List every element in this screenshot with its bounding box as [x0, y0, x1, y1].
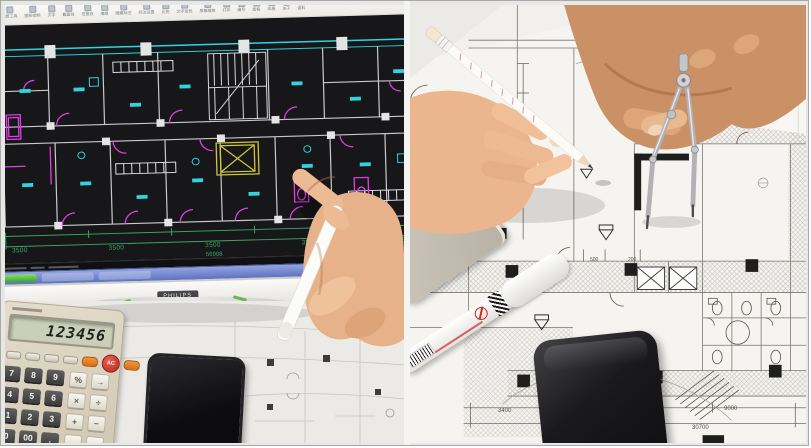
panel-divider — [404, 1, 410, 446]
left-photo-cad-monitor: 图层工具图形绘制文字截面线任意线编组隐藏标注标注设置比例文字查找屏幕缩放打印编号… — [5, 5, 404, 443]
pointing-hand — [5, 5, 404, 443]
drafting-hands — [410, 5, 806, 443]
right-photo-blueprint-drafting: 500 200 3400 9000 30700 0014 — [410, 5, 806, 443]
photo-frame: 图层工具图形绘制文字截面线任意线编组隐藏标注标注设置比例文字查找屏幕缩放打印编号… — [0, 0, 809, 446]
